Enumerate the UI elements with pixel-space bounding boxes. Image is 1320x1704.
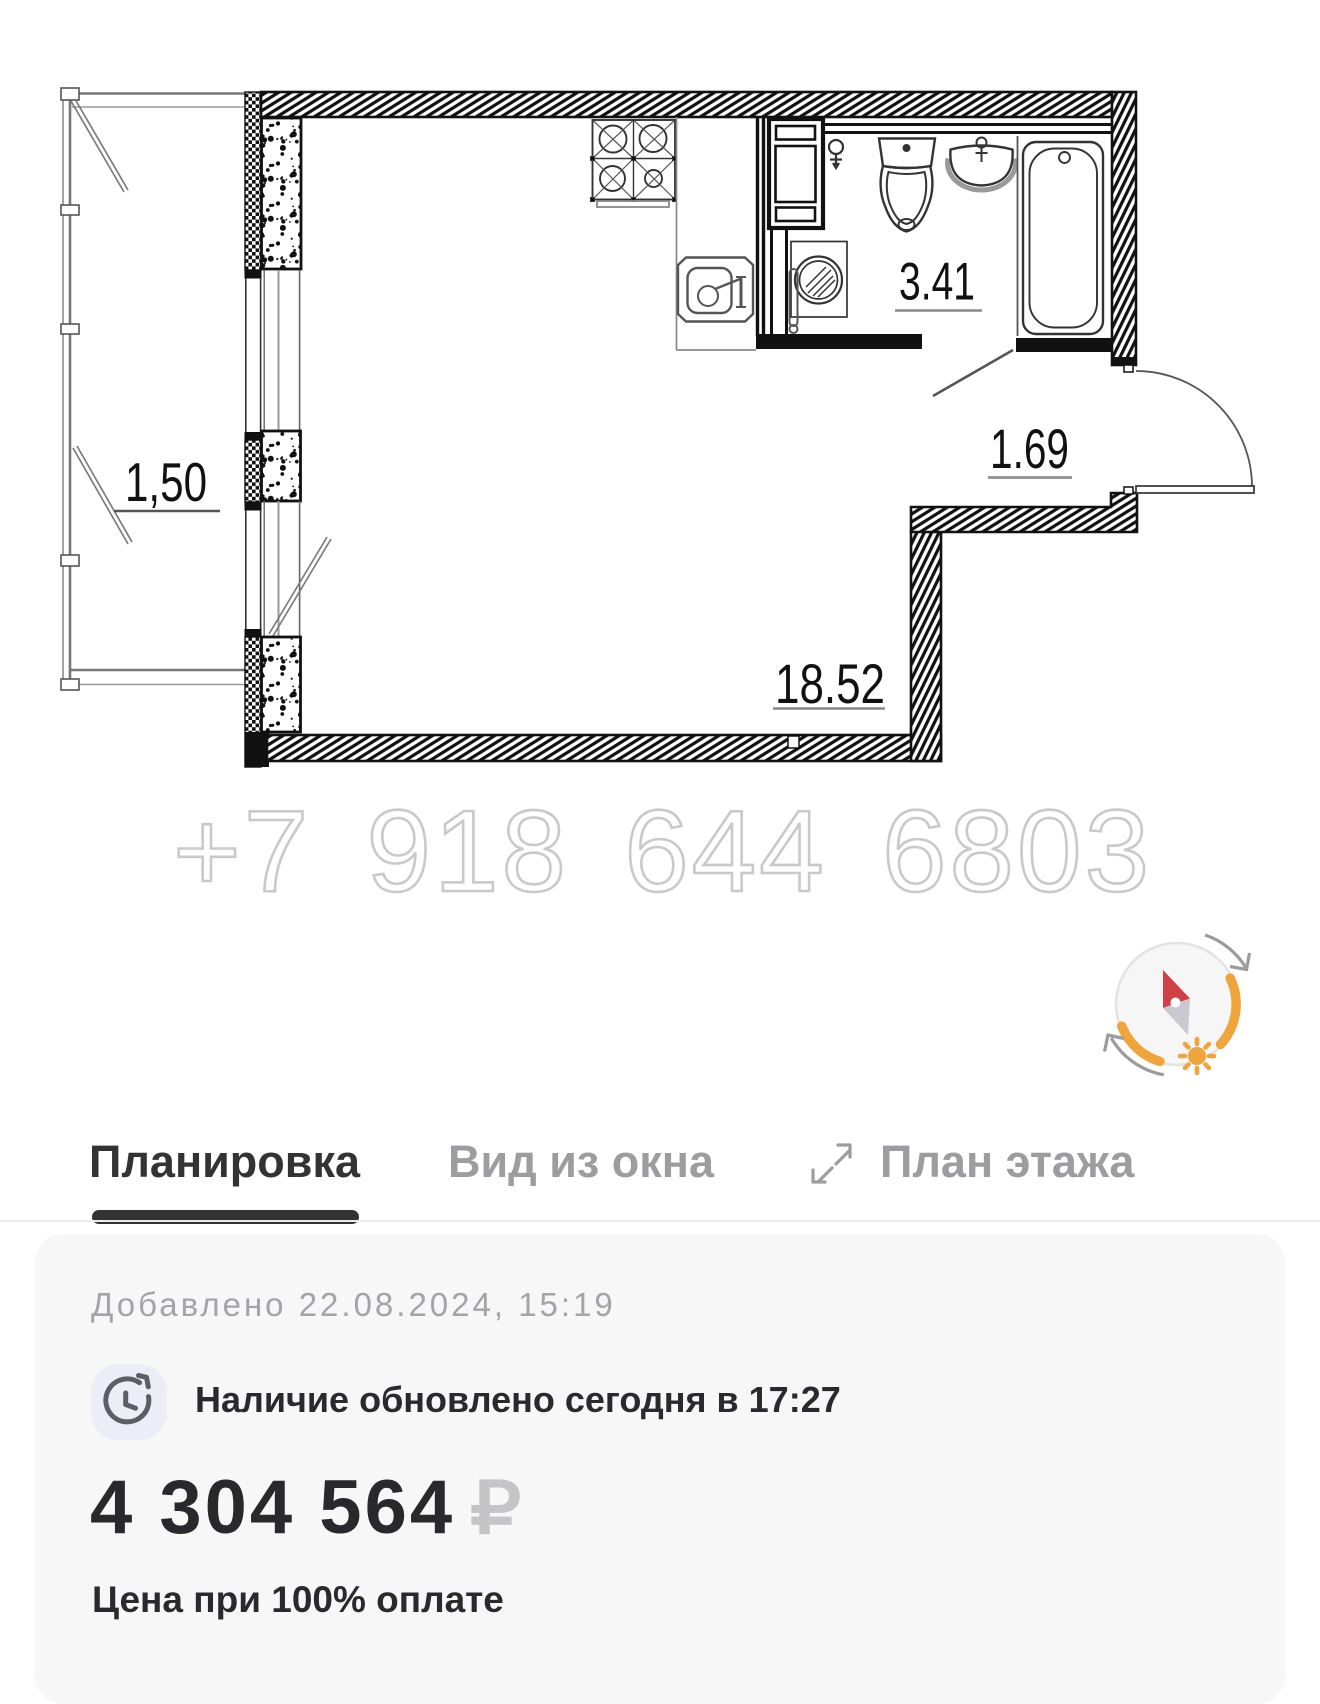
- svg-text:1.69: 1.69: [990, 417, 1069, 480]
- svg-text:1,50: 1,50: [125, 451, 207, 513]
- svg-text:3.41: 3.41: [899, 253, 975, 312]
- svg-text:18.52: 18.52: [775, 652, 885, 715]
